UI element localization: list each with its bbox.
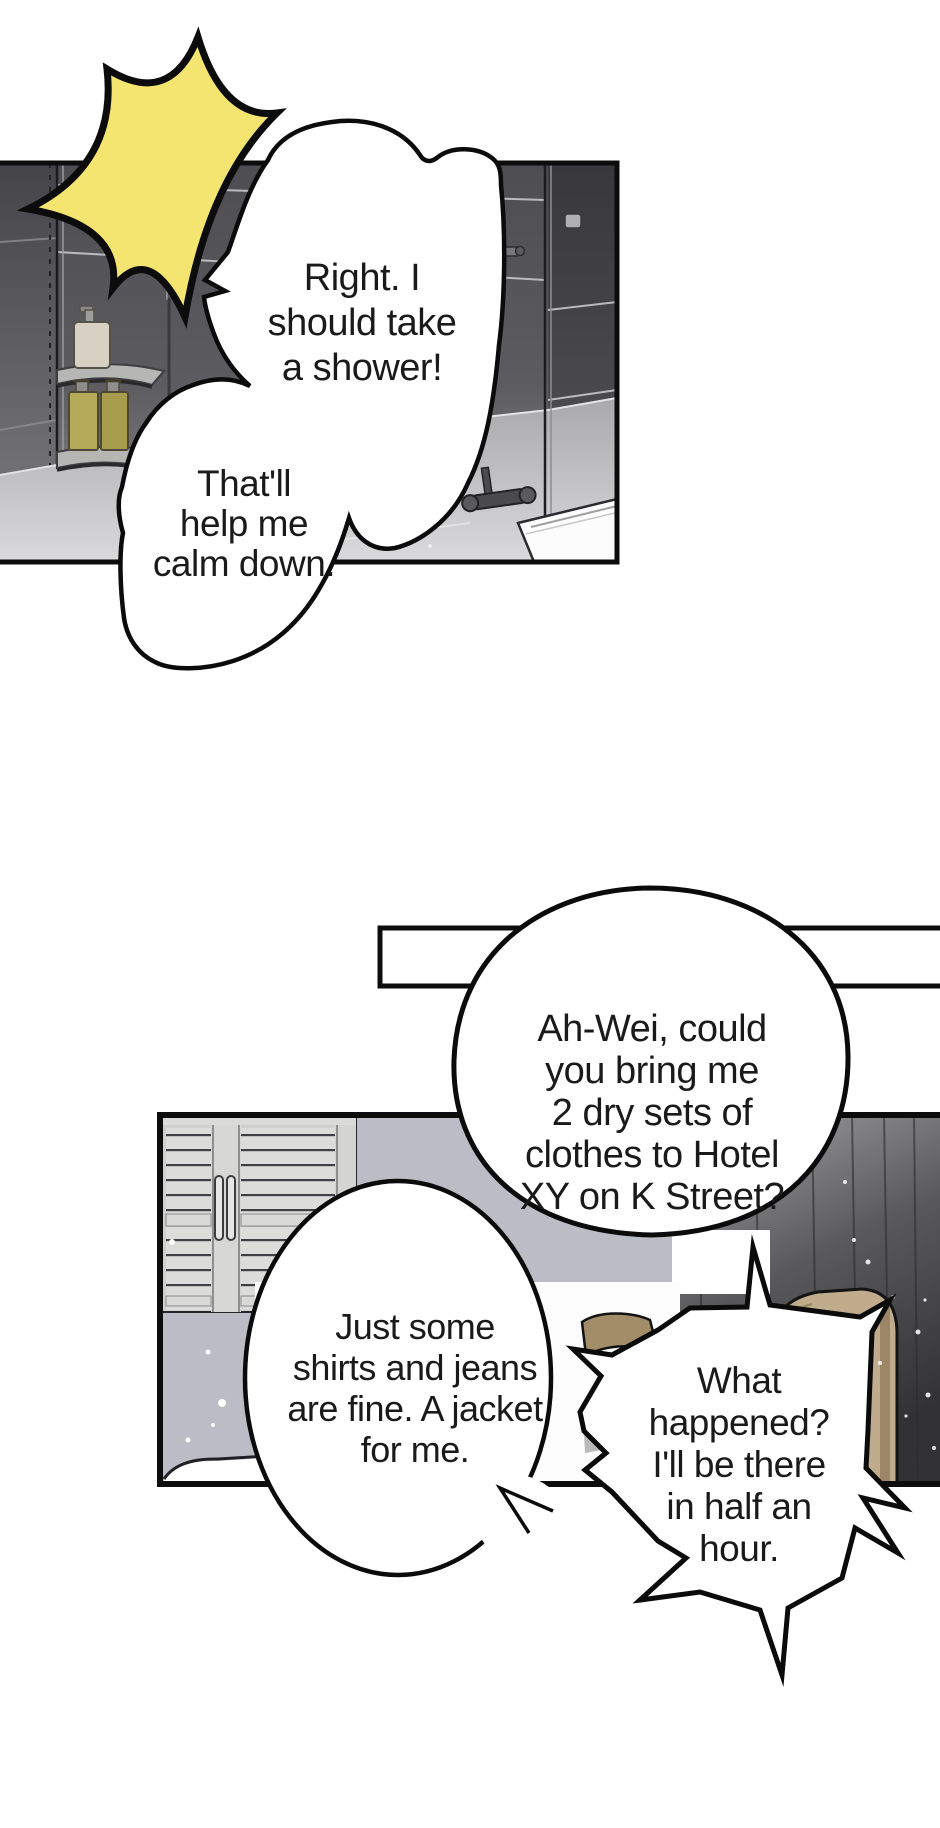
dialogue-line: are fine. A jacket xyxy=(260,1388,570,1429)
dialogue-line: should take xyxy=(212,301,512,346)
dialogue-line: hour. xyxy=(604,1528,874,1570)
dialogue-line: a shower! xyxy=(212,346,512,391)
dialogue-line: for me. xyxy=(260,1429,570,1470)
closet-handle-left xyxy=(215,1176,223,1240)
dialogue-line: in half an xyxy=(604,1486,874,1528)
dialogue-line: you bring me xyxy=(492,1050,812,1092)
dialogue-line: happened? xyxy=(604,1402,874,1444)
dialogue-line: Ah-Wei, could xyxy=(492,1008,812,1050)
door-handle xyxy=(565,214,581,228)
speech-text-reply: What happened? I'll be there in half an … xyxy=(604,1360,874,1570)
speech-text-request: Ah-Wei, could you bring me 2 dry sets of… xyxy=(492,1008,812,1218)
dialogue-line: What xyxy=(604,1360,874,1402)
dialogue-line: clothes to Hotel xyxy=(492,1134,812,1176)
dialogue-line: calm down. xyxy=(114,544,374,584)
dialogue-line: XY on K Street? xyxy=(492,1176,812,1218)
dialogue-line: I'll be there xyxy=(604,1444,874,1486)
closet-handle-right xyxy=(227,1176,235,1240)
speech-text-clothes: Just some shirts and jeans are fine. A j… xyxy=(260,1306,570,1470)
dialogue-line: That'll xyxy=(114,464,374,504)
dialogue-line: 2 dry sets of xyxy=(492,1092,812,1134)
speech-text-shower: Right. I should take a shower! xyxy=(212,256,512,391)
comic-page: Right. I should take a shower! That'll h… xyxy=(0,0,940,1828)
speech-text-calm: That'll help me calm down. xyxy=(114,464,374,584)
dialogue-line: Right. I xyxy=(212,256,512,301)
dialogue-line: help me xyxy=(114,504,374,544)
dialogue-line: Just some xyxy=(260,1306,570,1347)
dialogue-line: shirts and jeans xyxy=(260,1347,570,1388)
